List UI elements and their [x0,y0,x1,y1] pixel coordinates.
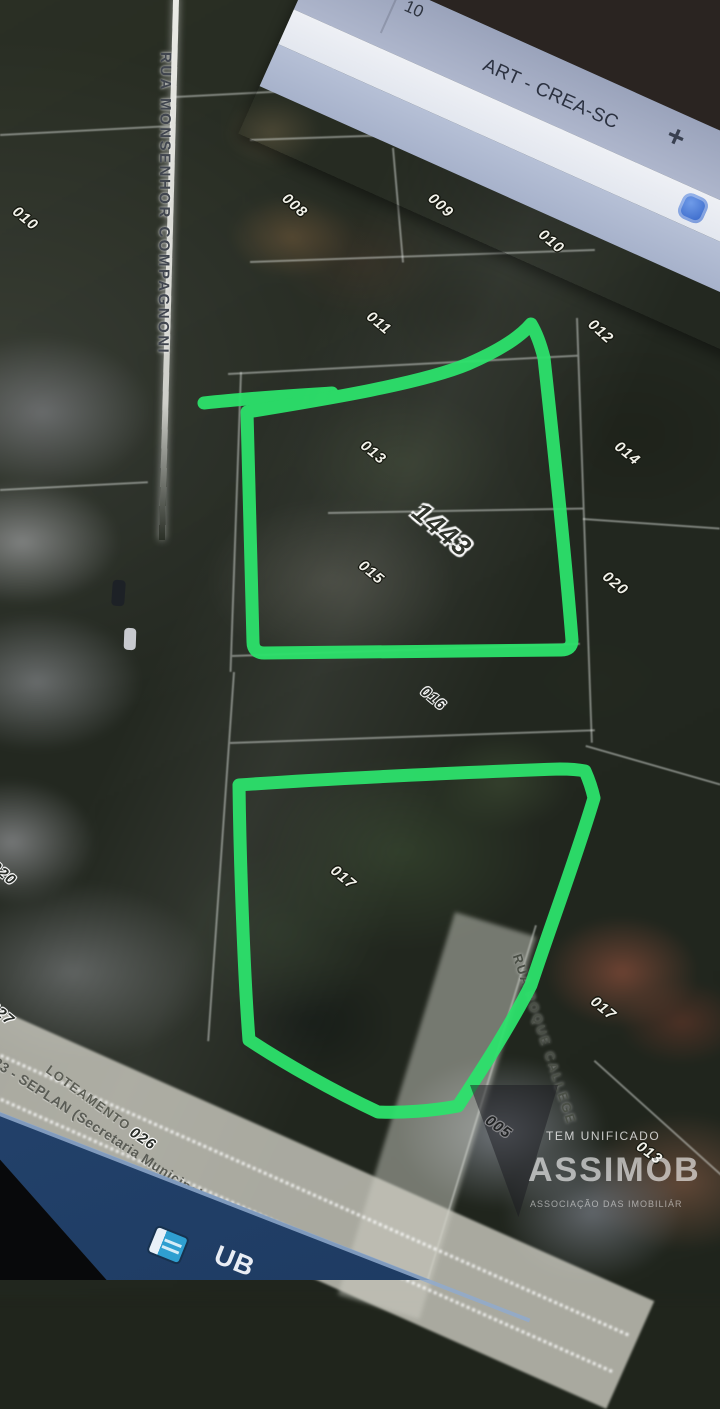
partial-tab[interactable]: 10 [401,0,426,22]
watermark-line1: TEM UNIFICADO [546,1129,660,1143]
browser-logo-icon[interactable] [675,190,711,226]
tab-separator [380,0,399,33]
watermark: TEM UNIFICADO ASSIMOB ASSOCIAÇÃO DAS IMO… [470,1085,720,1285]
street-name-monsenhor: RUA MONSENHOR COMPAGNONI [154,52,174,355]
car-on-road [124,628,137,650]
photo-of-screen: { "browser": { "partial_tab_label": "10"… [0,0,720,1280]
watermark-line3: ASSOCIAÇÃO DAS IMOBILIÁR [530,1199,683,1209]
car-on-road [111,580,126,607]
watermark-brand: ASSIMOB [528,1151,701,1190]
new-tab-button[interactable]: + [661,118,691,156]
